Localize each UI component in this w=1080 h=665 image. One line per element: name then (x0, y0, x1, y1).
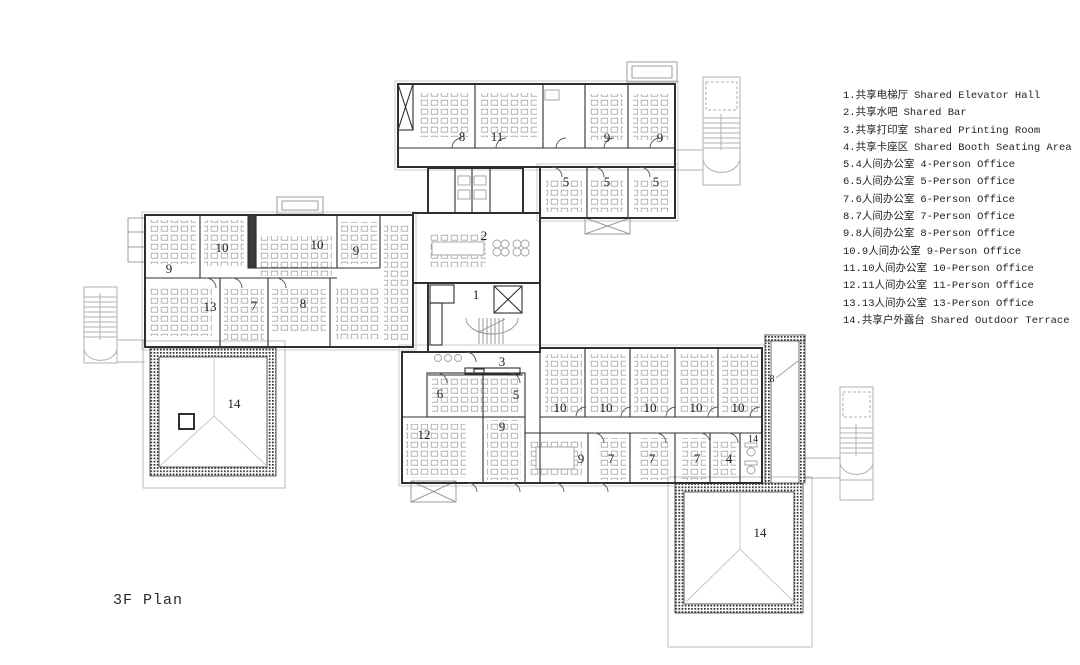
legend-en: Shared Printing Room (914, 125, 1040, 137)
legend-num: 9. (843, 228, 856, 240)
room-label: 3 (499, 354, 506, 369)
legend-en: 5-Person Office (920, 176, 1015, 188)
room-label: 14 (228, 396, 242, 411)
room-label: 14 (748, 434, 758, 445)
room-label: 7 (694, 451, 701, 466)
legend-en: 13-Person Office (933, 298, 1034, 310)
legend-item: 3.共享打印室Shared Printing Room (843, 123, 1073, 140)
legend-zh: 共享户外露台 (862, 315, 925, 327)
legend-item: 11.10人间办公室10-Person Office (843, 261, 1073, 278)
legend-num: 6. (843, 176, 856, 188)
legend-num: 13. (843, 298, 862, 310)
room-label: 10 (600, 400, 613, 415)
legend-en: 10-Person Office (933, 263, 1034, 275)
room-label: 12 (418, 427, 431, 442)
room-label: 10 (554, 400, 567, 415)
room-label: 8 (770, 374, 775, 385)
legend-en: Shared Bar (904, 107, 967, 119)
legend-en: 4-Person Office (920, 159, 1015, 171)
terrace-right (668, 477, 812, 647)
room-label: 9 (166, 261, 173, 276)
room-label: 10 (644, 400, 657, 415)
legend-item: 6.5人间办公室5-Person Office (843, 174, 1073, 191)
terrace-roof-lines (686, 492, 794, 602)
legend-num: 5. (843, 159, 856, 171)
legend-en: Shared Booth Seating Area (914, 142, 1072, 154)
room-label: 7 (649, 451, 656, 466)
room-label: 5 (563, 174, 570, 189)
legend-item: 10.9人间办公室9-Person Office (843, 244, 1073, 261)
legend-num: 10. (843, 246, 862, 258)
legend-en: 9-Person Office (927, 246, 1022, 258)
legend-item: 4.共享卡座区Shared Booth Seating Area (843, 140, 1073, 157)
room-label: 10 (311, 237, 324, 252)
room-label: 8 (300, 296, 307, 311)
terrace-roof-lines (160, 357, 267, 466)
external-stair-left (84, 287, 145, 363)
room-label: 9 (578, 451, 585, 466)
legend-en: Shared Outdoor Terrace (931, 315, 1070, 327)
room-label: 10 (732, 400, 745, 415)
room-label: 4 (726, 451, 733, 466)
external-stair-top-right (675, 77, 740, 185)
room-label: 13 (204, 299, 217, 314)
legend-zh: 13人间办公室 (862, 298, 927, 310)
legend-item: 2.共享水吧Shared Bar (843, 105, 1073, 122)
legend-item: 8.7人间办公室7-Person Office (843, 209, 1073, 226)
room-label: 9 (657, 130, 664, 145)
room-label: 7 (251, 298, 258, 313)
legend-item: 5.4人间办公室4-Person Office (843, 157, 1073, 174)
legend-en: 8-Person Office (920, 228, 1015, 240)
terrace-left (143, 341, 285, 488)
room-label: 10 (216, 240, 229, 255)
legend-num: 1. (843, 90, 856, 102)
legend-num: 11. (843, 263, 862, 275)
terrace-strip-right (765, 335, 805, 483)
legend-en: Shared Elevator Hall (914, 90, 1040, 102)
legend-en: 11-Person Office (933, 280, 1034, 292)
legend: 1.共享电梯厅Shared Elevator Hall 2.共享水吧Shared… (843, 88, 1073, 330)
plan-title: 3F Plan (113, 592, 183, 609)
room-label: 5 (604, 174, 611, 189)
room-label: 9 (353, 243, 360, 258)
legend-item: 14.共享户外露台Shared Outdoor Terrace (843, 313, 1073, 330)
legend-num: 14. (843, 315, 862, 327)
room-label: 5 (653, 174, 660, 189)
room-label: 8 (459, 129, 466, 144)
legend-zh: 8人间办公室 (856, 228, 915, 240)
legend-num: 3. (843, 125, 856, 137)
legend-zh: 7人间办公室 (856, 211, 915, 223)
legend-en: 7-Person Office (920, 211, 1015, 223)
room-label: 7 (608, 451, 615, 466)
room-label: 1 (473, 287, 480, 302)
legend-item: 12.11人间办公室11-Person Office (843, 278, 1073, 295)
room-label: 11 (491, 129, 504, 144)
legend-zh: 共享电梯厅 (856, 90, 909, 102)
room-label: 10 (690, 400, 703, 415)
legend-num: 12. (843, 280, 862, 292)
legend-zh: 共享打印室 (856, 125, 909, 137)
legend-en: 6-Person Office (920, 194, 1015, 206)
legend-num: 8. (843, 211, 856, 223)
legend-item: 9.8人间办公室8-Person Office (843, 226, 1073, 243)
legend-zh: 5人间办公室 (856, 176, 915, 188)
legend-zh: 4人间办公室 (856, 159, 915, 171)
legend-zh: 10人间办公室 (862, 263, 927, 275)
legend-num: 7. (843, 194, 856, 206)
room-label: 9 (499, 419, 506, 434)
legend-zh: 共享卡座区 (856, 142, 909, 154)
legend-item: 1.共享电梯厅Shared Elevator Hall (843, 88, 1073, 105)
skylight (179, 414, 194, 429)
legend-num: 4. (843, 142, 856, 154)
legend-item: 7.6人间办公室6-Person Office (843, 192, 1073, 209)
legend-item: 13.13人间办公室13-Person Office (843, 296, 1073, 313)
legend-zh: 9人间办公室 (862, 246, 921, 258)
floor-plan-page: 8 11 9 9 5 5 5 10 10 9 9 13 7 8 2 1 3 6 … (0, 0, 1080, 665)
room-label: 2 (481, 228, 488, 243)
legend-num: 2. (843, 107, 856, 119)
room-label: 5 (513, 387, 520, 402)
room-label: 14 (754, 525, 768, 540)
legend-zh: 共享水吧 (856, 107, 898, 119)
legend-zh: 11人间办公室 (862, 280, 927, 292)
legend-zh: 6人间办公室 (856, 194, 915, 206)
external-stair-right (805, 387, 873, 500)
room-label: 9 (604, 130, 611, 145)
outer-walls (145, 84, 762, 483)
room-label: 6 (437, 386, 444, 401)
